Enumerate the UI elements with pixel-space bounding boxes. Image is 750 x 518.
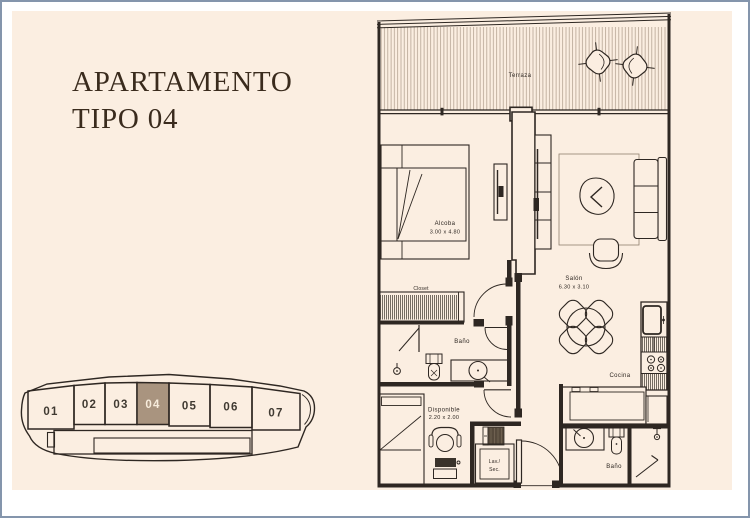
desk: [434, 469, 457, 479]
bed-icon: [379, 394, 425, 485]
toilet-icon: [609, 427, 624, 454]
sofa-icon: [634, 158, 667, 241]
corridor-inner: [94, 438, 250, 453]
unit-04-label: 04: [145, 399, 160, 411]
salon-label: Salón: [565, 276, 582, 282]
cocina-label: Cocina: [609, 373, 630, 379]
shower-head-icon: [653, 429, 661, 440]
unit-03-label: 03: [113, 399, 128, 411]
corridor-outline: [54, 431, 252, 455]
bano-1-label: Baño: [454, 339, 470, 345]
floor-plan: Terraza: [374, 10, 674, 492]
brochure-page: APARTAMENTO TIPO 04 01 02 03 04 05 06 07: [0, 0, 750, 518]
disponible-dims: 2.20 x 2.00: [429, 415, 460, 421]
terrace-railing: [377, 13, 671, 28]
dining-table-icon: [556, 297, 616, 357]
bed-icon: [381, 145, 469, 259]
entry-door: [517, 440, 563, 483]
disponible-door-arc: [484, 390, 511, 417]
closet-hatch: [381, 295, 459, 320]
cocina-area: Cocina: [562, 302, 667, 424]
entry-door-arc: [522, 441, 563, 482]
alcoba-door-arc: [474, 284, 507, 317]
hull-inner-line: [302, 395, 311, 425]
lav-label-2: Sec.: [489, 467, 500, 473]
salon-room: Salón 6.30 x 3.10: [559, 154, 667, 291]
toilet-icon: [426, 354, 442, 380]
bano-2-label: Baño: [606, 464, 622, 470]
page-title: APARTAMENTO TIPO 04: [72, 64, 293, 138]
alcoba-room: Alcoba 3.00 x 4.80: [381, 145, 507, 259]
lav-label-1: Lav./: [489, 459, 501, 465]
kitchen-island: [562, 387, 667, 424]
coffee-table-icon: [580, 178, 614, 214]
alcoba-dims: 3.00 x 4.80: [430, 230, 461, 236]
title-line-1: APARTAMENTO: [72, 64, 293, 101]
unit-02-label: 02: [82, 399, 97, 411]
lavanderia-area: Lav./ Sec.: [470, 422, 521, 488]
hallway-walls-doors: [474, 260, 522, 418]
closet: Closet: [378, 286, 485, 327]
shower-divider: [628, 427, 632, 485]
bathroom-sink-icon: [451, 360, 510, 382]
terraza-room: Terraza: [377, 13, 671, 110]
unit-07-label: 07: [268, 408, 283, 420]
bano-1-room: Baño: [378, 325, 511, 388]
unit-05-label: 05: [182, 401, 197, 413]
disponible-label: Disponible: [428, 408, 460, 414]
alcoba-tv-console: [494, 164, 507, 220]
closet-label: Closet: [413, 286, 429, 292]
bathroom-sink-icon: [566, 427, 604, 450]
alcoba-label: Alcoba: [435, 221, 456, 227]
bano-1-door-arc: [485, 328, 507, 350]
desk-chair-icon: [429, 428, 461, 452]
kitchen-sink-icon: [641, 306, 667, 337]
shower-door: [636, 456, 658, 478]
monitor-icon: [435, 458, 456, 467]
shower-head-icon: [394, 363, 401, 374]
title-line-2: TIPO 04: [72, 101, 293, 138]
armchair-icon: [590, 239, 623, 269]
washer-icon: [488, 427, 504, 445]
stove-icon: [641, 356, 667, 374]
building-key-plan: 01 02 03 04 05 06 07: [17, 370, 317, 482]
salon-dims: 6.30 x 3.10: [559, 285, 590, 291]
unit-06-label: 06: [223, 402, 238, 414]
media-partition-wall: [512, 112, 551, 274]
entry-door-leaf: [517, 440, 522, 483]
unit-01-label: 01: [43, 406, 58, 418]
terraza-label: Terraza: [509, 73, 532, 79]
shower-door: [399, 328, 419, 351]
